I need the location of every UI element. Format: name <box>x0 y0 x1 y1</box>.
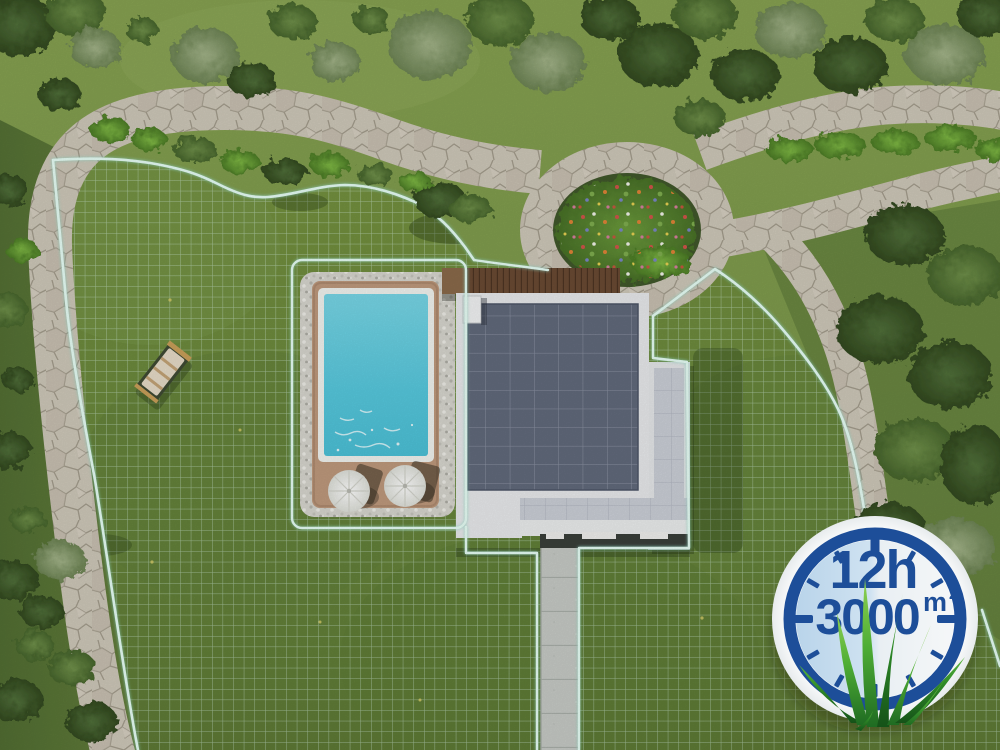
coverage-badge: 12h 3000 m 2 <box>771 516 978 733</box>
scene-canvas: 12h 3000 m 2 <box>0 0 1000 750</box>
garden-aerial-scene: 12h 3000 m 2 <box>0 0 1000 750</box>
badge-area-unit-sup: 2 <box>949 586 958 603</box>
tick-bar-9 <box>787 615 813 623</box>
badge-area-unit: m <box>923 587 947 617</box>
